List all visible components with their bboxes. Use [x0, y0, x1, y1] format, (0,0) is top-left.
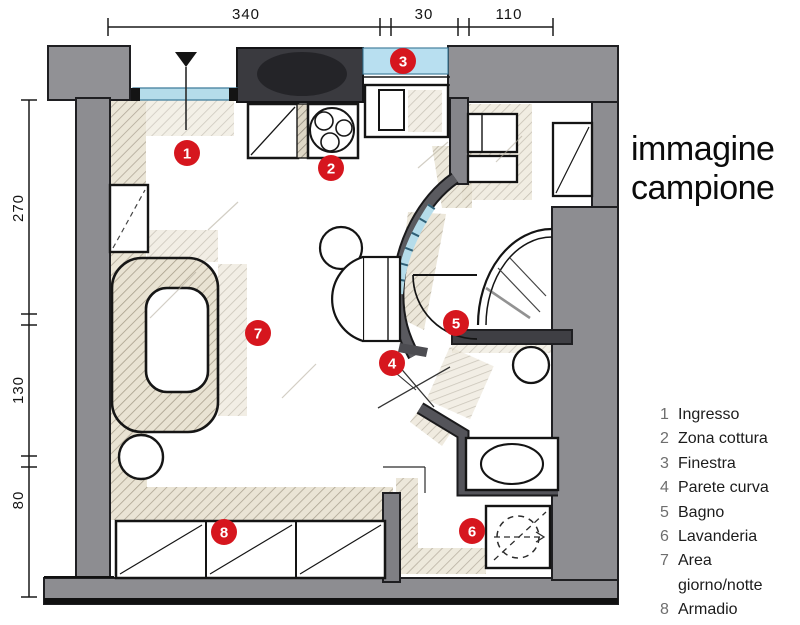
stool [513, 347, 549, 383]
wall-top-right-band [448, 46, 618, 102]
side-table [110, 185, 148, 252]
svg-text:8: 8 [220, 525, 228, 542]
marker-7: 7 [245, 320, 271, 346]
basin-counter [363, 257, 400, 341]
title-line2: campione [631, 169, 774, 208]
marker-8: 8 [211, 519, 237, 545]
legend-item-parete-curva: 4 Parete curva [660, 476, 784, 500]
washbasin-group [320, 227, 400, 341]
wall-cabinet [468, 114, 517, 152]
title-line1: immagine [631, 130, 774, 169]
dim-top-340: 340 [232, 6, 260, 23]
dimension-line-top: 340 30 110 [108, 6, 553, 36]
legend-item-bagno: 5 Bagno [660, 501, 784, 525]
kitchen-tall-block [237, 48, 363, 102]
dimension-line-left: 270 130 80 [10, 100, 37, 597]
entry-glass-door [133, 88, 237, 100]
legend-item-area-giorno-notte: 7 Area giorno/notte [660, 549, 784, 598]
svg-text:6: 6 [468, 524, 476, 541]
svg-text:2: 2 [327, 161, 335, 178]
wall-bath-bottom [452, 330, 572, 344]
svg-text:1: 1 [183, 146, 191, 163]
wall-right-lower [552, 207, 618, 580]
legend-item-finestra: 3 Finestra [660, 452, 784, 476]
sofa-seat [146, 288, 208, 392]
kitchen-group [248, 104, 358, 158]
dim-top-30: 30 [415, 6, 434, 23]
wall-top-left-block [48, 46, 130, 100]
marker-2: 2 [318, 155, 344, 181]
marker-3: 3 [390, 48, 416, 74]
dim-left-80: 80 [10, 491, 27, 510]
wall-right-upper [592, 102, 618, 209]
marker-5: 5 [443, 310, 469, 336]
marker-6: 6 [459, 518, 485, 544]
wall-bath-left [450, 98, 468, 184]
dim-left-270: 270 [10, 194, 27, 222]
sink-basin [379, 90, 404, 130]
marker-1: 1 [174, 140, 200, 166]
legend-item-armadio: 8 Armadio [660, 598, 784, 622]
dim-top-110: 110 [496, 6, 523, 23]
svg-text:5: 5 [452, 316, 460, 333]
legend-item-lavanderia: 6 Lavanderia [660, 525, 784, 549]
round-table [119, 435, 163, 479]
legend: 1 Ingresso 2 Zona cottura 3 Finestra 4 P… [660, 403, 784, 623]
marker-4: 4 [379, 350, 405, 376]
svg-text:3: 3 [399, 54, 407, 71]
legend-item-zona-cottura: 2 Zona cottura [660, 427, 784, 451]
dim-left-130: 130 [10, 376, 27, 404]
svg-text:7: 7 [254, 326, 262, 343]
wall-left [76, 98, 110, 600]
floorplan-page: 340 30 110 270 130 80 [0, 0, 800, 625]
entrance-arrow-icon [175, 52, 197, 67]
page-title: immagine campione [631, 130, 774, 208]
shower-arc [478, 229, 552, 325]
wall-cabinet [468, 156, 517, 182]
wardrobe-group [116, 521, 385, 578]
svg-text:4: 4 [388, 356, 397, 373]
legend-item-ingresso: 1 Ingresso [660, 403, 784, 427]
